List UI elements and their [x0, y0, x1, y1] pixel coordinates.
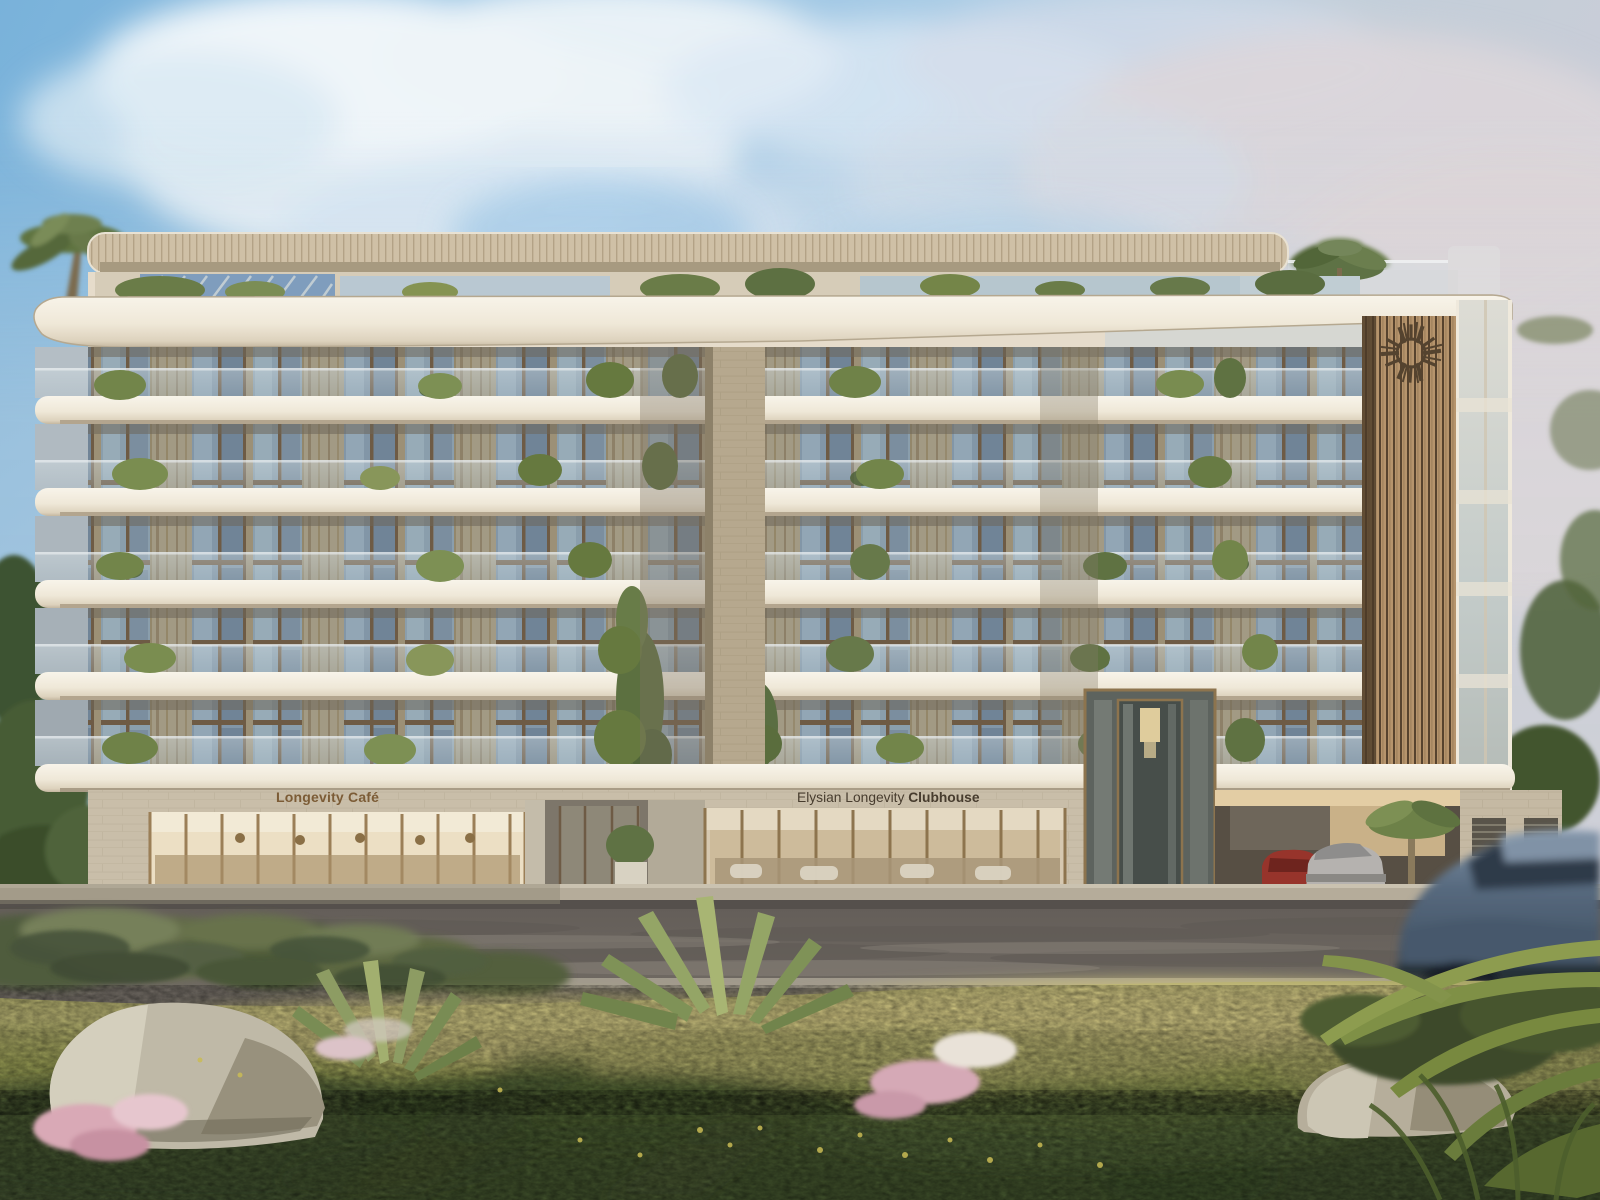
- svg-text:Longevity Café: Longevity Café: [276, 789, 379, 805]
- svg-text:Elysian Longevity Clubhouse: Elysian Longevity Clubhouse: [797, 790, 980, 805]
